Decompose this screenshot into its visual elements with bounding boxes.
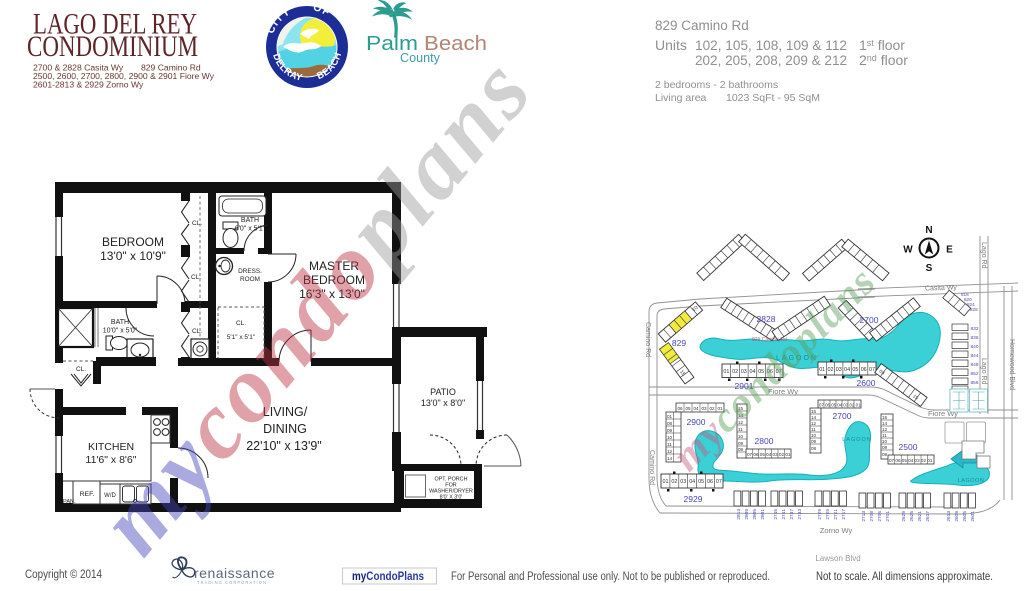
svg-text:PATIO: PATIO [430,387,456,397]
svg-text:09: 09 [738,441,744,446]
svg-text:ROOM: ROOM [240,276,260,283]
svg-text:2813: 2813 [736,509,742,520]
svg-text:14: 14 [811,415,817,420]
svg-text:Lawson Blvd: Lawson Blvd [815,554,860,563]
svg-text:W: W [903,245,913,256]
svg-text:2605: 2605 [962,511,968,522]
svg-text:11: 11 [882,433,887,438]
svg-text:840: 840 [971,344,979,350]
svg-text:844: 844 [971,353,979,359]
svg-text:CL.: CL. [192,220,202,227]
svg-text:N: N [925,225,932,236]
svg-text:TRADING CORPORATION: TRADING CORPORATION [197,580,267,585]
svg-text:2741: 2741 [781,509,787,520]
svg-text:2601: 2601 [970,511,976,522]
svg-text:828: 828 [970,307,978,312]
svg-text:Zorno Wy: Zorno Wy [820,526,853,535]
svg-text:For Personal and Professional: For Personal and Professional use only. … [451,571,770,583]
svg-text:2700: 2700 [833,411,852,421]
svg-text:2809: 2809 [744,509,750,520]
svg-text:829 Camino Rd: 829 Camino Rd [655,18,749,33]
svg-text:renaissance: renaissance [194,565,275,581]
svg-text:11: 11 [811,427,816,432]
svg-text:08: 08 [811,446,817,451]
svg-text:2629: 2629 [901,511,907,522]
svg-text:CL.: CL. [191,274,201,281]
svg-text:2613: 2613 [946,511,952,522]
svg-text:2801: 2801 [760,509,766,520]
svg-text:DRESS.: DRESS. [238,268,262,275]
svg-text:S: S [926,263,933,274]
svg-text:13'0" x 8'0": 13'0" x 8'0" [421,398,465,408]
svg-text:Units: Units [655,37,687,53]
svg-text:LAGOON: LAGOON [958,478,985,484]
svg-text:2nd floor: 2nd floor [859,52,908,68]
svg-text:04: 04 [689,479,695,485]
svg-text:06: 06 [677,406,683,411]
svg-text:07: 07 [869,367,875,373]
svg-text:03: 03 [836,367,842,373]
svg-text:BATH: BATH [241,217,259,224]
svg-text:05: 05 [698,479,704,485]
svg-text:01: 01 [723,369,729,375]
svg-text:2745: 2745 [773,509,779,520]
svg-text:2717: 2717 [841,509,847,520]
svg-text:15: 15 [882,415,888,420]
svg-text:832: 832 [971,326,979,332]
svg-text:09: 09 [667,428,673,433]
svg-text:06: 06 [861,367,867,373]
svg-text:07 06 05 04 03 02 01: 07 06 05 04 03 02 01 [889,458,933,463]
svg-text:myCondoPlans: myCondoPlans [352,571,424,583]
svg-text:CL.: CL. [192,328,202,335]
svg-text:Living area: Living area [655,92,707,104]
svg-text:04: 04 [693,406,699,411]
svg-text:2600: 2600 [857,378,876,388]
svg-text:10: 10 [811,433,817,438]
svg-text:10: 10 [882,439,888,444]
svg-text:County: County [400,50,440,65]
svg-text:Camino Rd: Camino Rd [648,450,655,485]
svg-text:07 06 05 04 03 02 01: 07 06 05 04 03 02 01 [747,452,791,457]
svg-text:852: 852 [971,371,979,377]
svg-text:102, 105, 108, 109 & 112: 102, 105, 108, 109 & 112 [695,37,847,53]
svg-text:10'0" x 5'0": 10'0" x 5'0" [103,328,138,335]
svg-text:09: 09 [811,439,817,444]
svg-text:08: 08 [738,447,744,452]
svg-text:2805: 2805 [752,509,758,520]
svg-text:02: 02 [828,367,834,373]
svg-text:2700: 2700 [860,315,879,325]
svg-text:06: 06 [707,479,713,485]
svg-text:2929: 2929 [684,494,703,504]
svg-text:856: 856 [971,380,979,386]
svg-text:2621: 2621 [917,511,923,522]
svg-text:BEDROOM: BEDROOM [102,235,164,249]
svg-text:2709: 2709 [869,511,875,522]
svg-text:05: 05 [852,367,858,373]
svg-text:2 bedrooms - 2 bathrooms: 2 bedrooms - 2 bathrooms [655,79,778,91]
svg-text:8'0' X 3'0': 8'0' X 3'0' [440,495,463,501]
svg-text:BATH: BATH [111,319,129,326]
svg-text:2713: 2713 [861,511,867,522]
svg-text:1023 SqFt - 95 SqM: 1023 SqFt - 95 SqM [726,92,820,104]
svg-text:848: 848 [971,362,979,368]
svg-text:2617: 2617 [925,511,931,522]
svg-text:2737: 2737 [789,509,795,520]
svg-text:CL.: CL. [76,366,86,373]
svg-text:14: 14 [882,421,888,426]
svg-text:836: 836 [971,335,979,341]
svg-text:Homewood Blvd: Homewood Blvd [1008,339,1015,390]
svg-text:09: 09 [882,445,888,450]
svg-text:Lago Rd: Lago Rd [980,242,987,269]
svg-text:Copyright © 2014: Copyright © 2014 [25,569,103,581]
svg-text:2800: 2800 [755,436,774,446]
svg-text:03: 03 [680,479,686,485]
svg-text:2733: 2733 [797,509,803,520]
svg-text:05: 05 [685,406,691,411]
svg-text:202, 205, 208, 209 & 212: 202, 205, 208, 209 & 212 [695,52,847,68]
svg-text:829: 829 [672,338,686,348]
svg-text:2701: 2701 [885,511,891,522]
svg-text:08: 08 [882,452,888,457]
svg-text:2500: 2500 [899,442,918,452]
svg-text:LAGOON: LAGOON [842,437,872,443]
svg-text:08: 08 [667,421,673,426]
svg-text:02: 02 [671,479,677,485]
svg-text:2625: 2625 [909,511,915,522]
svg-text:2721: 2721 [833,509,839,520]
svg-text:CONDOMINIUM: CONDOMINIUM [27,30,198,63]
svg-text:07 06 05 04 03 02 01: 07 06 05 04 03 02 01 [819,403,861,408]
svg-text:Casita Wy: Casita Wy [925,284,958,292]
svg-text:13'0" x 10'9": 13'0" x 10'9" [100,249,166,263]
svg-text:2725: 2725 [825,509,831,520]
svg-text:Lago Rd: Lago Rd [980,358,987,385]
svg-text:2601-2813 & 2929 Zorno Wy: 2601-2813 & 2929 Zorno Wy [33,80,144,90]
svg-text:Camino Rd: Camino Rd [644,322,651,357]
svg-text:6'0" x 5'1": 6'0" x 5'1" [235,226,266,233]
svg-text:PAN.: PAN. [63,499,76,505]
svg-text:2729: 2729 [817,509,823,520]
svg-text:15: 15 [811,409,817,414]
svg-text:1st floor: 1st floor [859,37,905,53]
svg-text:04: 04 [844,367,850,373]
svg-text:2609: 2609 [954,511,960,522]
svg-text:2828: 2828 [757,314,776,324]
svg-text:2705: 2705 [877,511,883,522]
svg-text:01: 01 [819,367,825,373]
svg-text:01: 01 [663,479,669,485]
svg-text:12: 12 [882,427,888,432]
svg-text:Not to scale. All dimensions: Not to scale. All dimensions approximate… [816,569,993,583]
svg-text:01: 01 [667,414,673,419]
svg-text:12: 12 [811,421,817,426]
svg-text:07: 07 [716,479,722,485]
svg-text:E: E [946,245,953,256]
